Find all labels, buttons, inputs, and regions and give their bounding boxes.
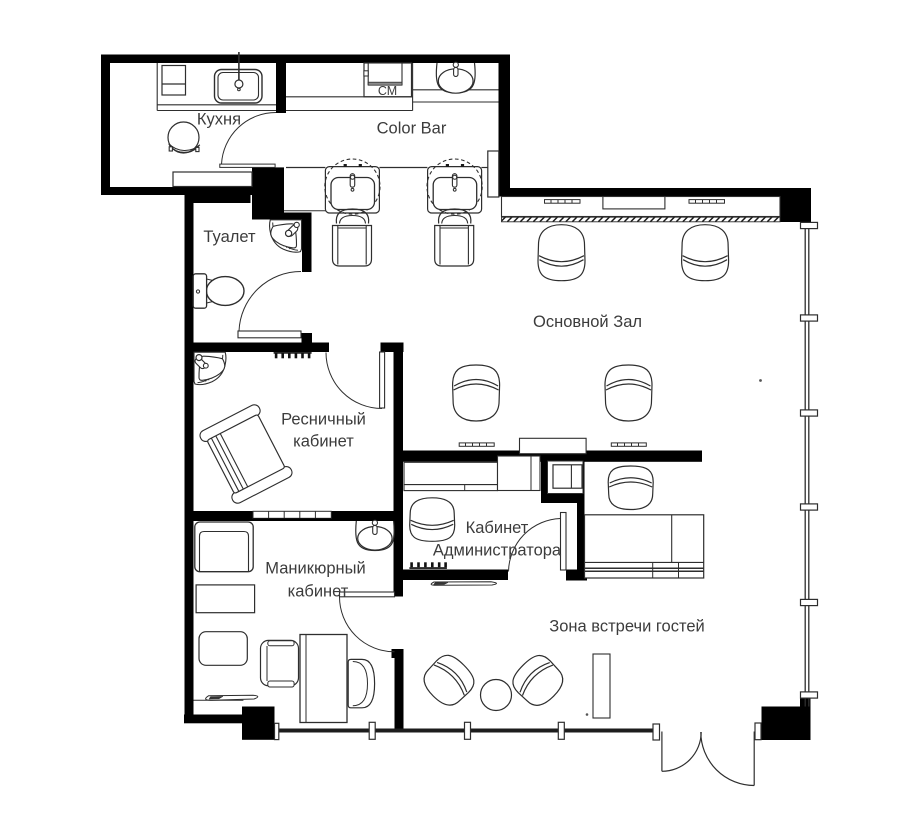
svg-text:Ресничный: Ресничный (281, 411, 366, 429)
svg-text:Туалет: Туалет (203, 228, 256, 246)
svg-text:Color Bar: Color Bar (377, 120, 447, 138)
svg-text:Кабинет: Кабинет (466, 519, 529, 537)
svg-text:Администратора: Администратора (433, 542, 562, 560)
svg-text:кабинет: кабинет (288, 583, 349, 601)
svg-text:Кухня: Кухня (197, 111, 241, 129)
svg-text:Основной Зал: Основной Зал (533, 313, 642, 331)
svg-text:СМ: СМ (378, 84, 397, 98)
svg-text:Зона встречи гостей: Зона встречи гостей (549, 618, 704, 636)
svg-text:кабинет: кабинет (293, 433, 354, 451)
svg-text:Маникюрный: Маникюрный (265, 560, 365, 578)
